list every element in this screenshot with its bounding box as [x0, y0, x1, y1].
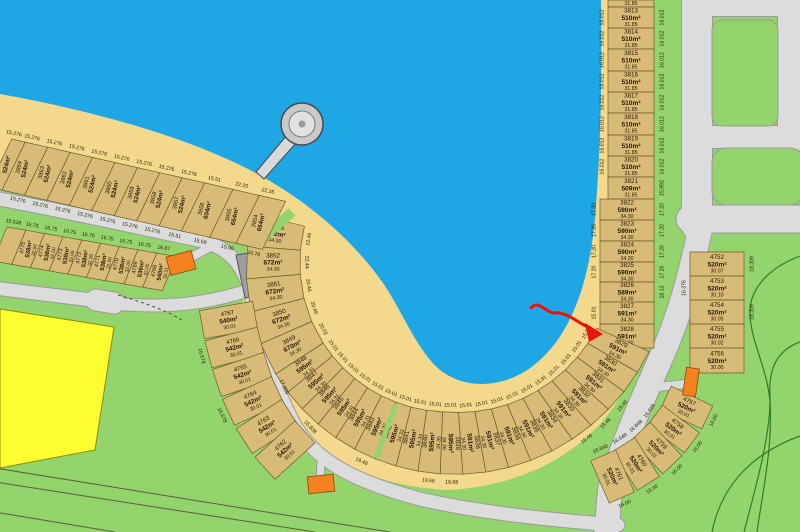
lot-3818-area: 510m² — [621, 121, 641, 128]
lot-3839-inner-dim: 15.01 — [444, 402, 457, 408]
pier-head-center — [299, 121, 306, 128]
lot-3825-inner-dim: 17.20 — [591, 265, 597, 278]
lot-3815-outer-dim: 16.012 — [659, 52, 665, 68]
lot-4755-dim: 30.02 — [711, 340, 724, 346]
lot-3817-outer-dim: 16.012 — [659, 94, 665, 110]
lot-3820-outer-dim: 16.012 — [659, 158, 665, 174]
lot-3816-outer-dim: 16.012 — [659, 73, 665, 89]
subdivision-map-canvas: 31.853813510m²31.8516.01216.0123814510m²… — [0, 0, 800, 532]
utility-marker — [307, 474, 335, 494]
lot-3816-inner-dim: 16.012 — [599, 73, 605, 89]
lot-4756-area: 520m² — [707, 358, 727, 365]
lot-3823-area: 590m² — [617, 228, 637, 235]
lot-4755-area: 520m² — [707, 333, 727, 340]
lot-3826-outer-dim: 18.13 — [659, 285, 665, 298]
lot-4752-number: 4752 — [710, 254, 724, 261]
lot-3816-number: 3816 — [624, 72, 638, 79]
lot-3820-dim: 31.85 — [625, 171, 638, 177]
lot-3813-dim: 31.85 — [625, 22, 638, 28]
lot-3814-dim: 31.85 — [625, 43, 638, 49]
lot-partial-e-labels: 31.85 — [625, 1, 638, 7]
lot-3817-number: 3817 — [624, 93, 638, 100]
lot-3814-number: 3814 — [624, 29, 638, 36]
lot-3822-dim: 34.30 — [621, 214, 634, 220]
road-island — [712, 148, 800, 205]
lot-3826-area: 589m² — [617, 289, 637, 296]
lot-4752-outer-dim: 18.209 — [749, 256, 755, 272]
lot-3825-area: 590m² — [617, 269, 637, 276]
lot-3822-number: 3822 — [620, 200, 634, 207]
lot-3826-dim: 34.30 — [621, 296, 634, 302]
lot-3821-area: 509m² — [621, 185, 641, 192]
lot-3839-area: 595m² — [447, 434, 454, 454]
lot-3816-area: 510m² — [621, 79, 641, 86]
lot-3815-inner-dim: 16.012 — [599, 52, 605, 68]
lot-3852-inner-dim: 22.44 — [303, 256, 309, 269]
lot-4752-area: 520m² — [707, 261, 727, 268]
lot-3821-number: 3821 — [624, 178, 638, 185]
lot-4755-number: 4755 — [710, 326, 724, 333]
lot-3827-inner-dim: 15.01 — [591, 306, 597, 319]
lot-3814-outer-dim: 16.012 — [659, 30, 665, 46]
lot-3819-inner-dim: 16.012 — [599, 137, 605, 153]
lot-3827-number: 3827 — [620, 303, 634, 310]
lot-3826-number: 3826 — [620, 282, 634, 289]
lot-3815-dim: 31.85 — [625, 64, 638, 70]
road-island — [712, 20, 778, 126]
lot-4753-dim: 30.10 — [711, 292, 724, 298]
lot-4753-inner-dim: 16.376 — [681, 280, 687, 296]
lot-4754-area: 520m² — [707, 309, 727, 316]
lot-3825-outer-dim: 17.20 — [659, 265, 665, 278]
lot-3817-dim: 31.85 — [625, 107, 638, 113]
subdivision-map: 31.853813510m²31.8516.01216.0123814510m²… — [0, 0, 800, 532]
lot-partial-e-dim: 31.85 — [625, 1, 638, 7]
lot-3852-area: 672m² — [263, 260, 283, 267]
lot-3824-area: 590m² — [617, 249, 637, 256]
lot-3813-number: 3813 — [624, 8, 638, 15]
lot-3813-area: 510m² — [621, 15, 641, 22]
lot-3818-number: 3818 — [624, 114, 638, 121]
lot-3828-number: 3828 — [620, 326, 634, 333]
lot-4754-dim: 30.05 — [711, 316, 724, 322]
lot-3824-outer-dim: 17.20 — [659, 245, 665, 258]
lot-3818-inner-dim: 16.012 — [599, 116, 605, 132]
lot-4752-dim: 30.07 — [711, 268, 724, 274]
lot-3822-outer-dim: 17.20 — [659, 203, 665, 216]
lot-3820-number: 3820 — [624, 157, 638, 164]
lot-3825-number: 3825 — [620, 262, 634, 269]
lot-3827-area: 591m² — [617, 310, 637, 317]
lot-3817-inner-dim: 16.012 — [599, 94, 605, 110]
lot-3824-inner-dim: 17.20 — [591, 245, 597, 258]
lot-3817-area: 510m² — [621, 100, 641, 107]
lot-3819-dim: 31.85 — [625, 150, 638, 156]
lot-3824-dim: 34.30 — [621, 256, 634, 262]
lot-3824-number: 3824 — [620, 242, 634, 249]
lot-3840-outer-dim: 19.66 — [422, 478, 436, 485]
lot-3818-outer-dim: 16.012 — [659, 116, 665, 132]
lot-3813-outer-dim: 16.012 — [659, 9, 665, 25]
lot-3816-dim: 31.85 — [625, 86, 638, 92]
lot-3815-area: 510m² — [621, 57, 641, 64]
lot-3852-dim: 34.30 — [267, 267, 280, 273]
lot-3818-dim: 31.85 — [625, 128, 638, 134]
lot-3823-outer-dim: 17.20 — [659, 224, 665, 237]
lot-4754-number: 4754 — [710, 302, 724, 309]
lot-3839-number: 3839 — [454, 436, 461, 450]
lot-3820-area: 510m² — [621, 164, 641, 171]
lot-3815-number: 3815 — [624, 50, 638, 57]
lot-3819-area: 510m² — [621, 143, 641, 150]
lot-3819-number: 3819 — [624, 136, 638, 143]
lot-4753-area: 520m² — [707, 285, 727, 292]
lot-3814-inner-dim: 16.012 — [599, 30, 605, 46]
lot-3822-inner-dim: 17.20 — [591, 203, 597, 216]
lot-3840-inner-dim: 15.01 — [428, 401, 442, 408]
lot-4756-number: 4756 — [710, 351, 724, 358]
lot-4756-dim: 30.00 — [711, 365, 724, 371]
lot-3839-outer-dim: 19.68 — [445, 480, 458, 486]
lot-3822-area: 590m² — [617, 207, 637, 214]
lot-3823-number: 3823 — [620, 221, 634, 228]
lot-3827-dim: 34.30 — [621, 317, 634, 323]
lot-3821-dim: 31.85 — [625, 192, 638, 198]
lot-3820-inner-dim: 16.012 — [599, 158, 605, 174]
lot-4754-outer-dim: 18.209 — [749, 304, 755, 320]
lot-3821-outer-dim: 15.992 — [659, 180, 665, 196]
lot-3819-outer-dim: 16.012 — [659, 137, 665, 153]
lot-3823-inner-dim: 17.20 — [591, 224, 597, 237]
lot-3814-area: 510m² — [621, 36, 641, 43]
lot-3823-dim: 34.30 — [621, 235, 634, 241]
lot-3852-number: 3852 — [266, 252, 280, 259]
lot-4753-number: 4753 — [710, 278, 724, 285]
lot-3813-inner-dim: 16.012 — [599, 9, 605, 25]
lot-3840-dim: 34.35 — [436, 436, 443, 450]
